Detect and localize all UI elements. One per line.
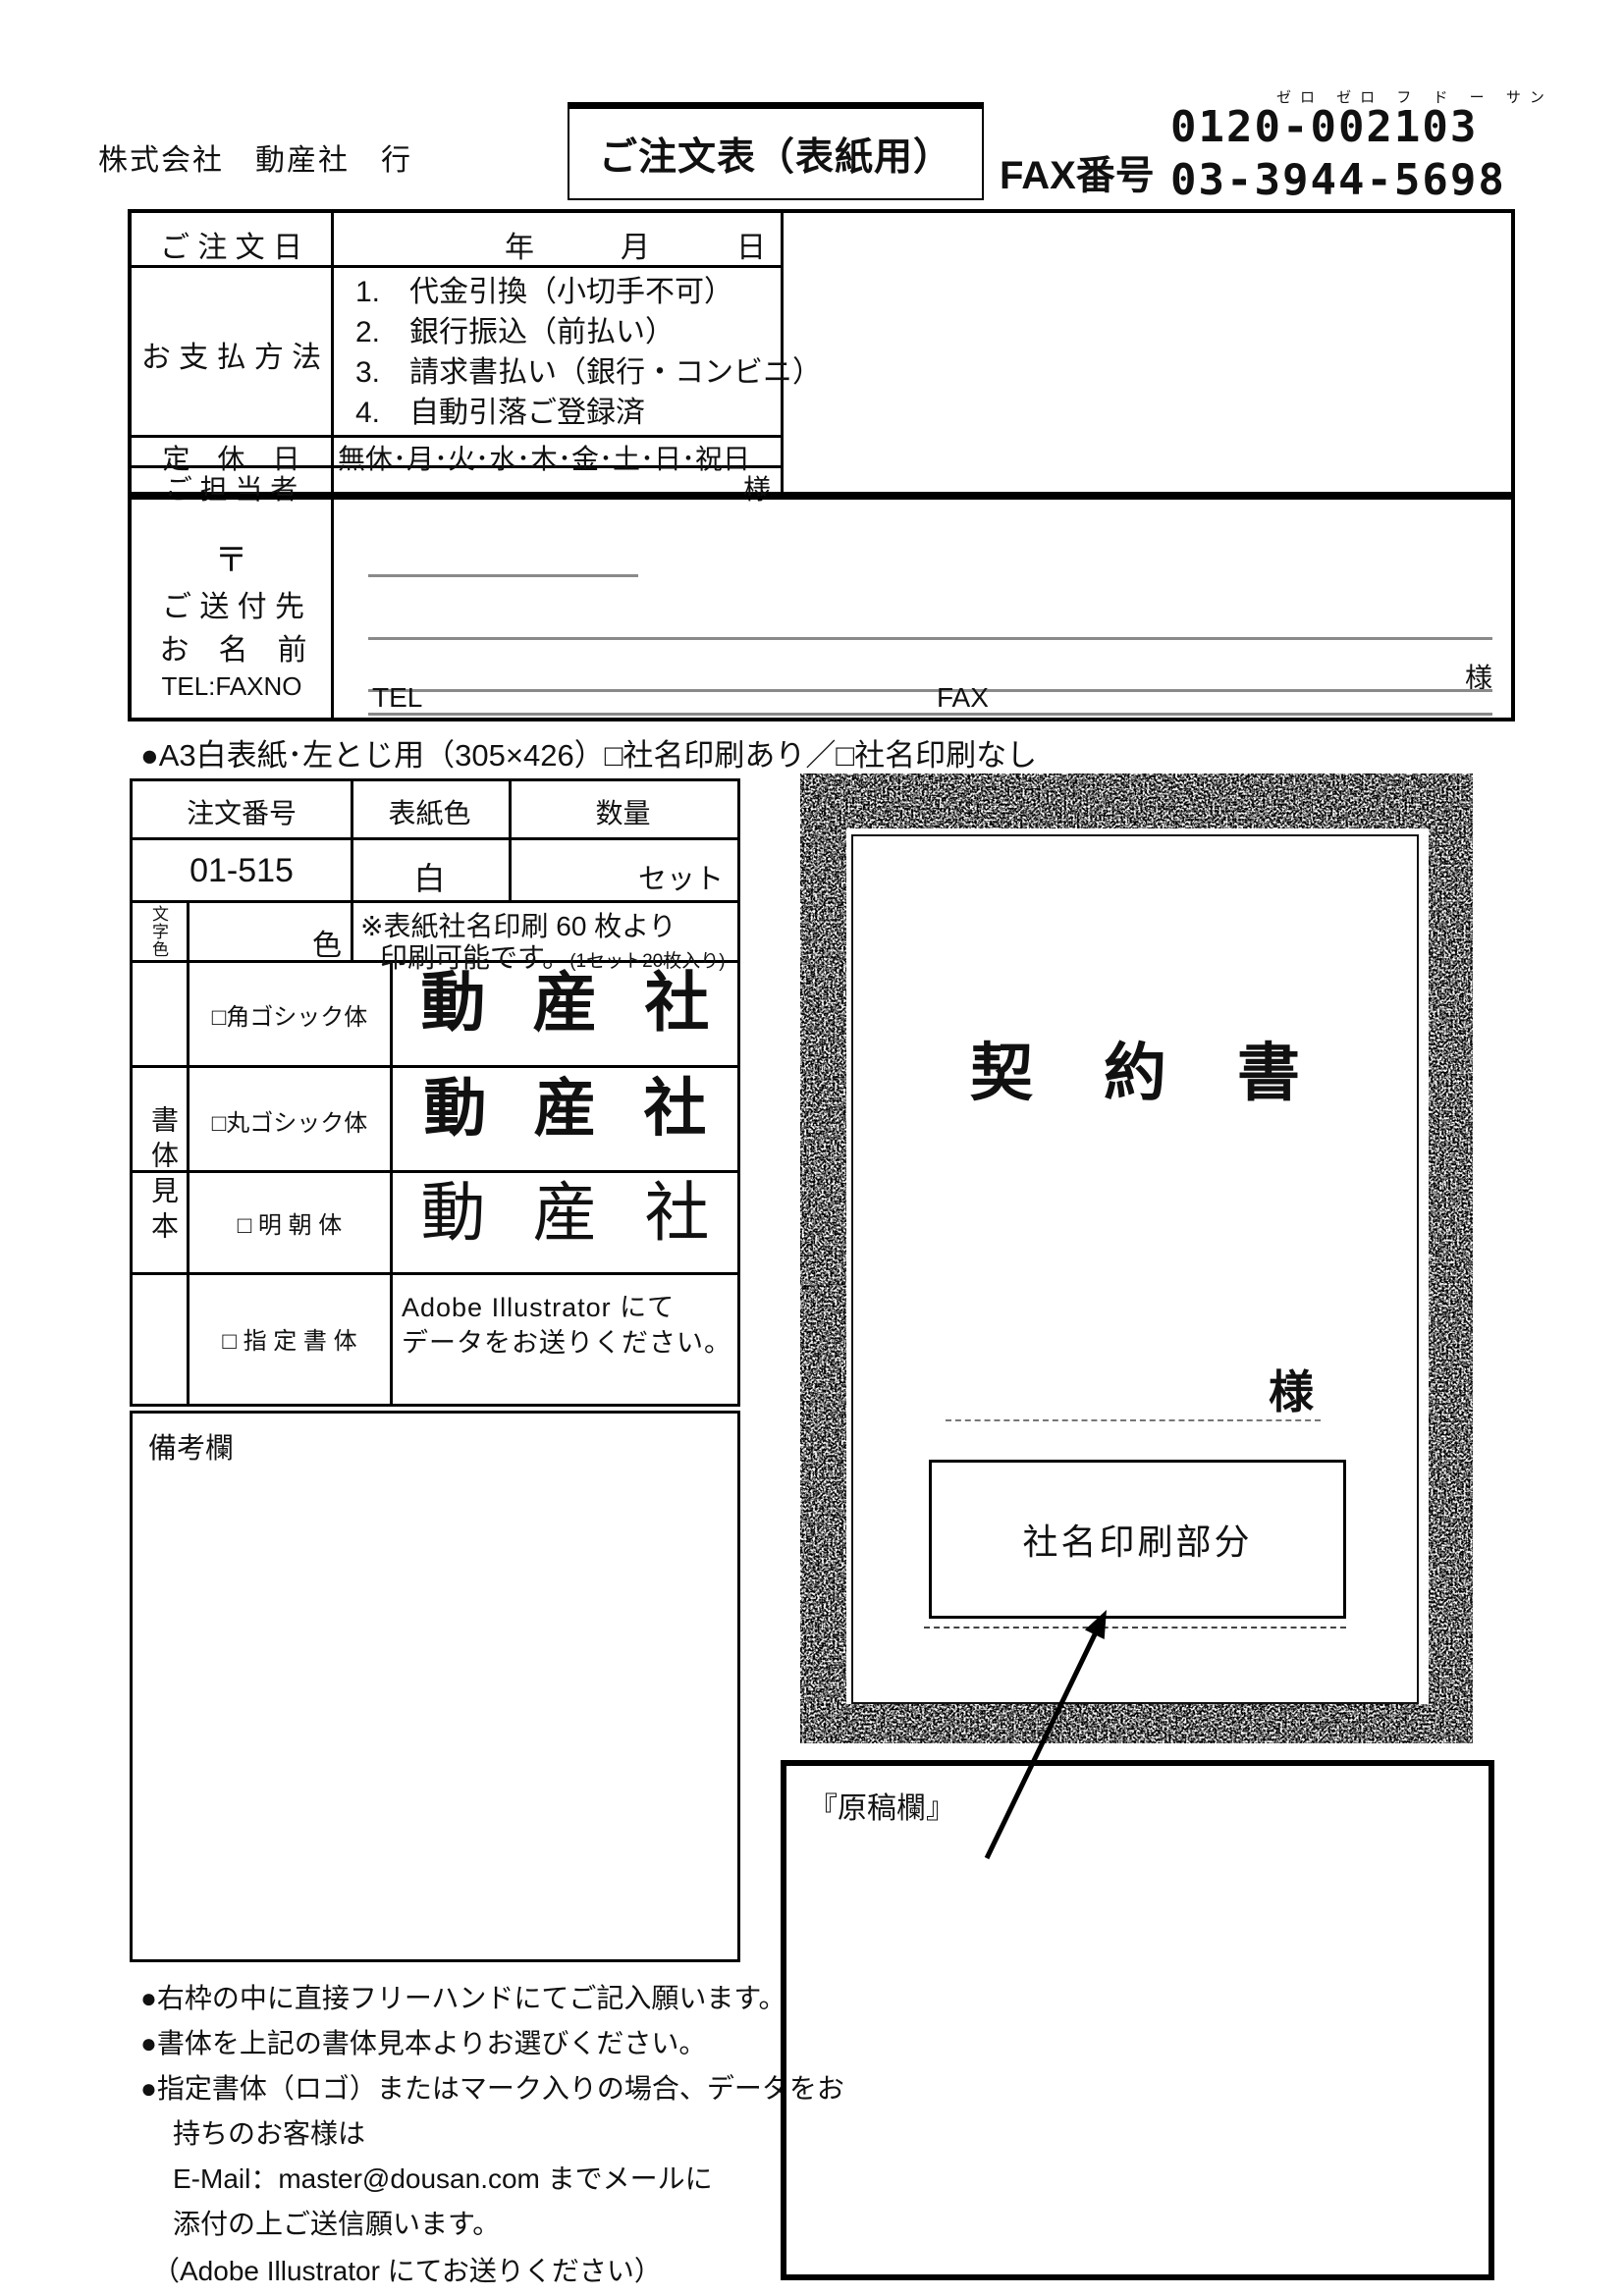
checkbox-mincho[interactable]: □ 明 朝 体 <box>189 1205 390 1240</box>
draft-area-label: 『原稿欄』 <box>808 1784 955 1827</box>
payment-option-3[interactable]: 3. 請求書払い（銀行・コンビニ） <box>355 352 822 393</box>
postal-mark: 〒 <box>132 533 331 581</box>
addressee-line: 株式会社 動産社 行 <box>98 135 412 179</box>
note-line: ●書体を上記の書体見本よりお選びください。 <box>140 2022 706 2061</box>
order-date-field[interactable]: 年 月 日 <box>334 223 780 266</box>
sample-square-gothic-text: 動産社 <box>421 966 757 1039</box>
note-line-email[interactable]: E-Mail：master@dousan.com までメールに <box>173 2158 713 2197</box>
note-line: 持ちのお客様は <box>173 2112 365 2152</box>
divider <box>133 1272 737 1275</box>
postal-code-field[interactable] <box>368 574 638 577</box>
quantity-unit[interactable]: セット <box>509 856 724 897</box>
order-date-label: ご 注 文 日 <box>132 223 331 266</box>
fax-order-form-page: 株式会社 動産社 行 ご注文表（表紙用） FAX番号 ゼロ ゼロ フ ド ー サ… <box>0 0 1624 2296</box>
text-color-label: 文字色 <box>146 905 171 958</box>
unit-year: 年 <box>505 223 534 266</box>
sample-round-gothic: 動産社 <box>393 1058 737 1148</box>
draft-area-box[interactable]: 『原稿欄』 <box>781 1760 1494 2280</box>
payment-options: 1. 代金引換（小切手不可） 2. 銀行振込（前払い） 3. 請求書払い（銀行・… <box>355 272 822 433</box>
recipient-label: ご 送 付 先 <box>137 582 329 625</box>
contract-title-text: 契約書 <box>970 1038 1371 1108</box>
fax-number-label: FAX番号 <box>1000 143 1155 200</box>
custom-font-note-line1: Adobe Illustrator にて <box>402 1286 675 1324</box>
company-print-area-dashed-line <box>924 1627 1346 1629</box>
remarks-label: 備考欄 <box>148 1425 234 1467</box>
contract-title: 契約書 <box>851 1023 1419 1113</box>
note-line: ●右枠の中に直接フリーハンドにてご記入願います。 <box>140 1977 786 2016</box>
sample-mincho: 動産社 <box>393 1160 737 1255</box>
checkbox-round-gothic[interactable]: □丸ゴシック体 <box>189 1103 390 1138</box>
company-print-area-label: 社名印刷部分 <box>1022 1514 1252 1565</box>
sample-square-gothic: 動産社 <box>393 950 737 1044</box>
payment-option-2[interactable]: 2. 銀行振込（前払い） <box>355 312 822 352</box>
column-header-quantity: 数量 <box>509 792 737 831</box>
text-color-suffix[interactable]: 色 <box>189 921 342 964</box>
checkbox-square-gothic[interactable]: □角ゴシック体 <box>189 997 390 1032</box>
preview-name-suffix: 様 <box>1269 1357 1314 1421</box>
tel-fax-field[interactable] <box>368 713 1492 716</box>
payment-method-label: お 支 払 方 法 <box>132 333 331 376</box>
form-title-box: ご注文表（表紙用） <box>568 102 984 200</box>
name-label: お 名 前 <box>137 625 329 668</box>
divider <box>133 837 737 840</box>
order-no-value: 01-515 <box>133 852 351 890</box>
order-info-table: ご 注 文 日 年 月 日 お 支 払 方 法 1. 代金引換（小切手不可） 2… <box>128 209 1515 496</box>
column-header-cover-color: 表紙色 <box>351 792 509 831</box>
font-sample-group-label: 書体見本 <box>143 1105 183 1247</box>
note-line: 添付の上ご送信願います。 <box>173 2203 500 2242</box>
column-header-order-no: 注文番号 <box>133 792 351 831</box>
note-line: ●指定書体（ロゴ）またはマーク入りの場合、データをお <box>140 2067 844 2107</box>
address-field[interactable] <box>368 637 1492 640</box>
remarks-box[interactable]: 備考欄 <box>130 1411 740 1962</box>
a3-cover-section-heading[interactable]: ●A3白表紙･左とじ用（305×426）□社名印刷あり／□社名印刷なし <box>140 730 1037 774</box>
fax-label: FAX <box>937 682 989 714</box>
unit-month: 月 <box>621 223 650 266</box>
company-print-area-box: 社名印刷部分 <box>929 1460 1346 1619</box>
unit-day: 日 <box>736 223 766 266</box>
sample-round-gothic-text: 動産社 <box>424 1073 754 1146</box>
spec-table: 注文番号 表紙色 数量 01-515 白 セット 文字色 色 ※表紙社名印刷 6… <box>130 778 740 1407</box>
note-line: （Adobe Illustrator にてお送りください） <box>152 2250 662 2289</box>
payment-option-4[interactable]: 4. 自動引落ご登録済 <box>355 393 822 433</box>
custom-font-note-line2: データをお送りください。 <box>402 1321 731 1360</box>
form-title: ご注文表（表紙用） <box>599 127 952 182</box>
name-field[interactable] <box>368 689 1492 692</box>
fax-number-local: 03-3944-5698 <box>1170 155 1506 205</box>
preview-name-line <box>946 1419 1321 1421</box>
fax-number-toll-free: 0120-002103 <box>1170 102 1478 152</box>
payment-option-1[interactable]: 1. 代金引換（小切手不可） <box>355 272 822 312</box>
divider <box>133 900 737 903</box>
telfax-label: TEL:FAXNO <box>134 671 330 702</box>
sample-mincho-text: 動産社 <box>421 1178 757 1250</box>
cover-color-value: 白 <box>351 854 509 899</box>
tel-label: TEL <box>372 682 422 714</box>
shipping-table: 〒 ご 送 付 先 お 名 前 TEL:FAXNO 様 TEL FAX <box>128 496 1515 721</box>
checkbox-custom-font[interactable]: □ 指 定 書 体 <box>189 1321 390 1356</box>
